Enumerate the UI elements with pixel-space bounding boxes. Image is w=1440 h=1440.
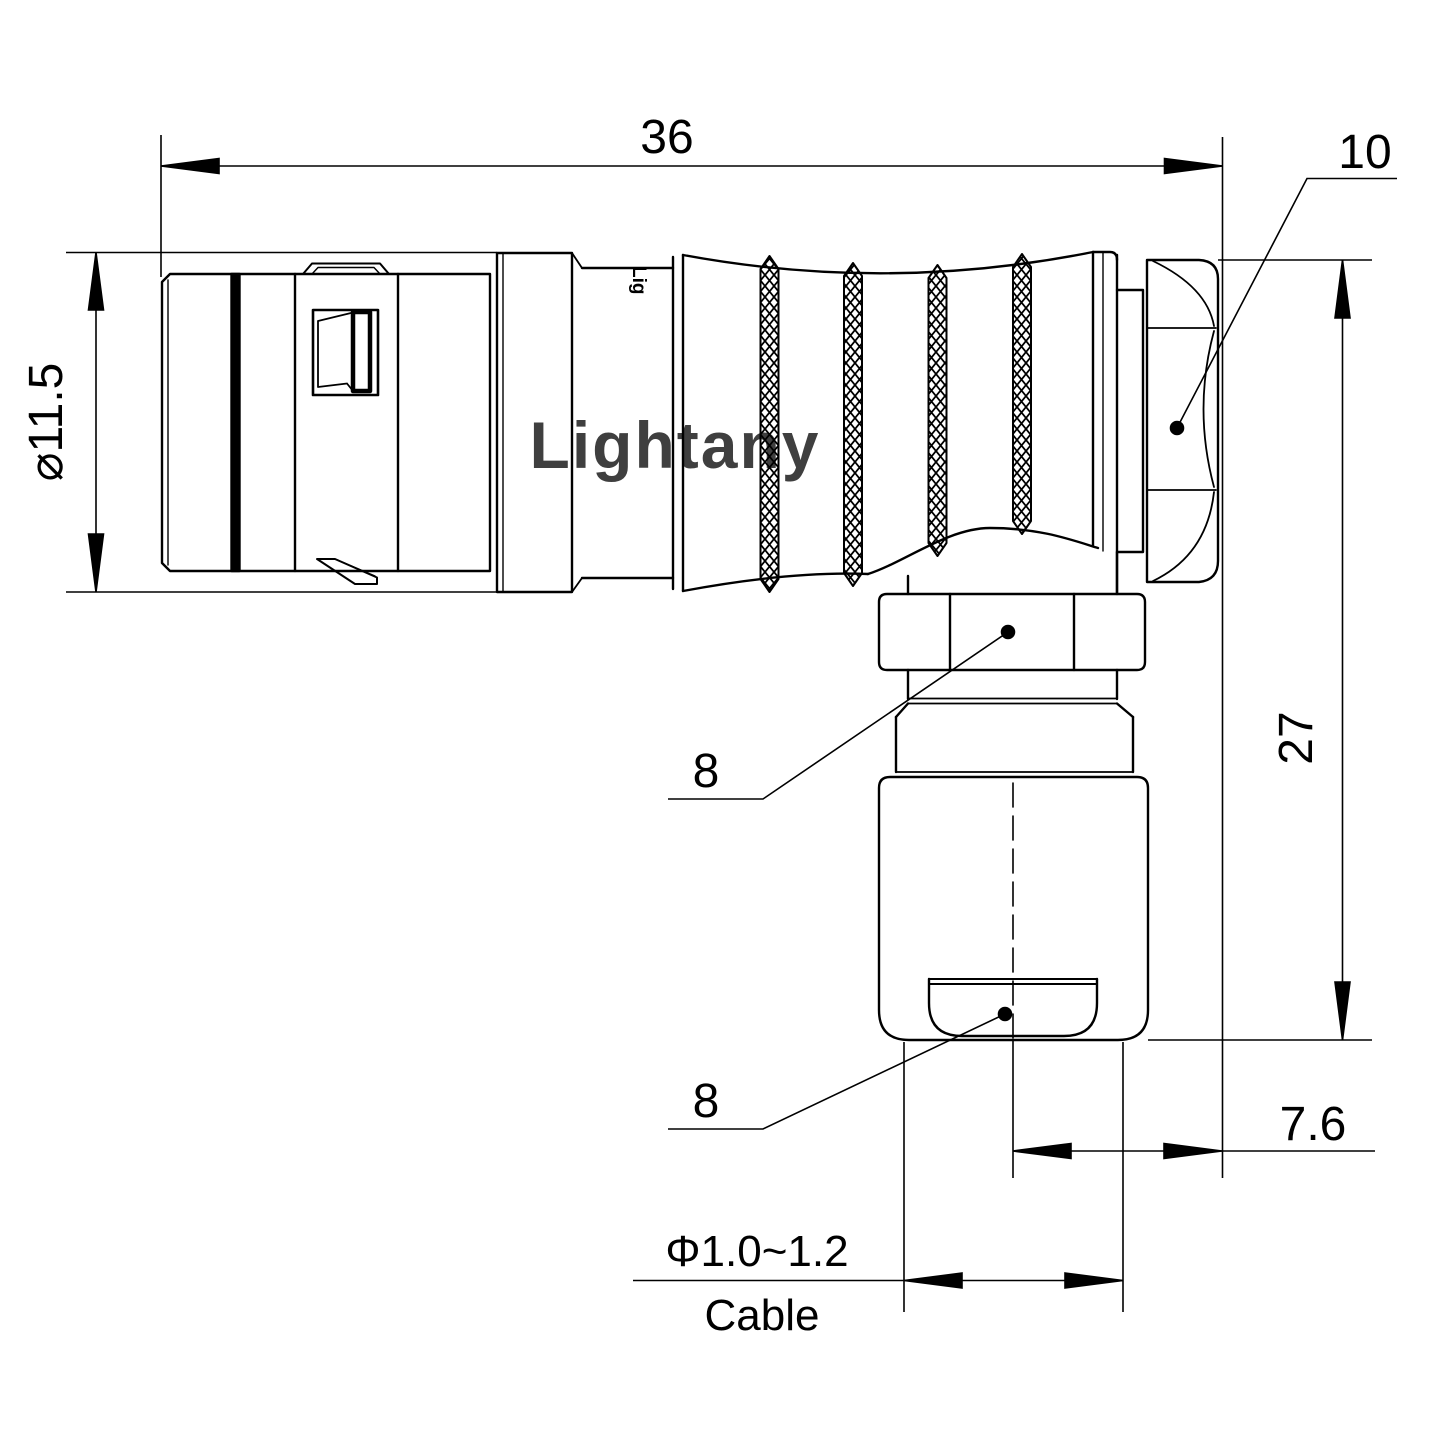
dim-label-8-upper: 8 — [693, 745, 720, 798]
arrowhead — [1335, 982, 1350, 1040]
dim-overall-length — [161, 135, 1223, 1178]
arrowhead — [1065, 1273, 1123, 1288]
connector-drawing: Lightany — [0, 0, 1440, 1440]
leader-dot — [999, 1008, 1012, 1021]
dim-label-diameter-11-5: ⌀11.5 — [20, 363, 73, 482]
leader-dot — [1171, 422, 1184, 435]
dim-label-36: 36 — [640, 111, 693, 164]
arrowhead — [89, 534, 104, 592]
dim-label-7-6: 7.6 — [1280, 1098, 1347, 1151]
arrowhead — [1164, 1144, 1222, 1159]
latch-tab — [353, 312, 370, 391]
connector-body — [162, 252, 1218, 1040]
knurl-band — [844, 263, 862, 586]
arrowhead — [161, 159, 219, 174]
front-shell-band — [232, 274, 240, 571]
dim-label-cable-range: Φ1.0~1.2 — [665, 1227, 848, 1276]
leader-dot — [1002, 626, 1015, 639]
dim-gland-nut-8 — [668, 1008, 1012, 1130]
elbow-body — [908, 552, 1117, 594]
knurl-band — [929, 265, 947, 556]
alignment-tab-top — [303, 264, 389, 275]
arrowhead — [1335, 260, 1350, 318]
arrowhead — [89, 253, 104, 311]
knurl-band — [761, 256, 779, 592]
drawing-canvas: Lightany — [0, 0, 1440, 1440]
hex-nut-right — [1147, 260, 1218, 582]
dim-label-cable: Cable — [705, 1291, 820, 1340]
arrowhead — [1165, 159, 1223, 174]
dim-label-8-lower: 8 — [693, 1075, 720, 1128]
dim-label-10: 10 — [1338, 126, 1391, 179]
elbow-shoulder — [868, 528, 1098, 574]
arrowhead — [904, 1273, 962, 1288]
dim-label-27: 27 — [1270, 711, 1323, 764]
rear-neck — [1117, 290, 1143, 552]
dim-elbow-nut-8 — [668, 626, 1015, 800]
bayonet-window — [313, 310, 378, 395]
knurl-band — [1013, 254, 1031, 534]
dim-overall-height — [1148, 260, 1372, 1040]
arrowhead — [1013, 1144, 1071, 1159]
lower-neck — [896, 670, 1133, 772]
body-brand-mark: Lig — [628, 266, 649, 295]
dim-front-diameter — [66, 253, 497, 593]
dimensions — [66, 135, 1397, 1312]
